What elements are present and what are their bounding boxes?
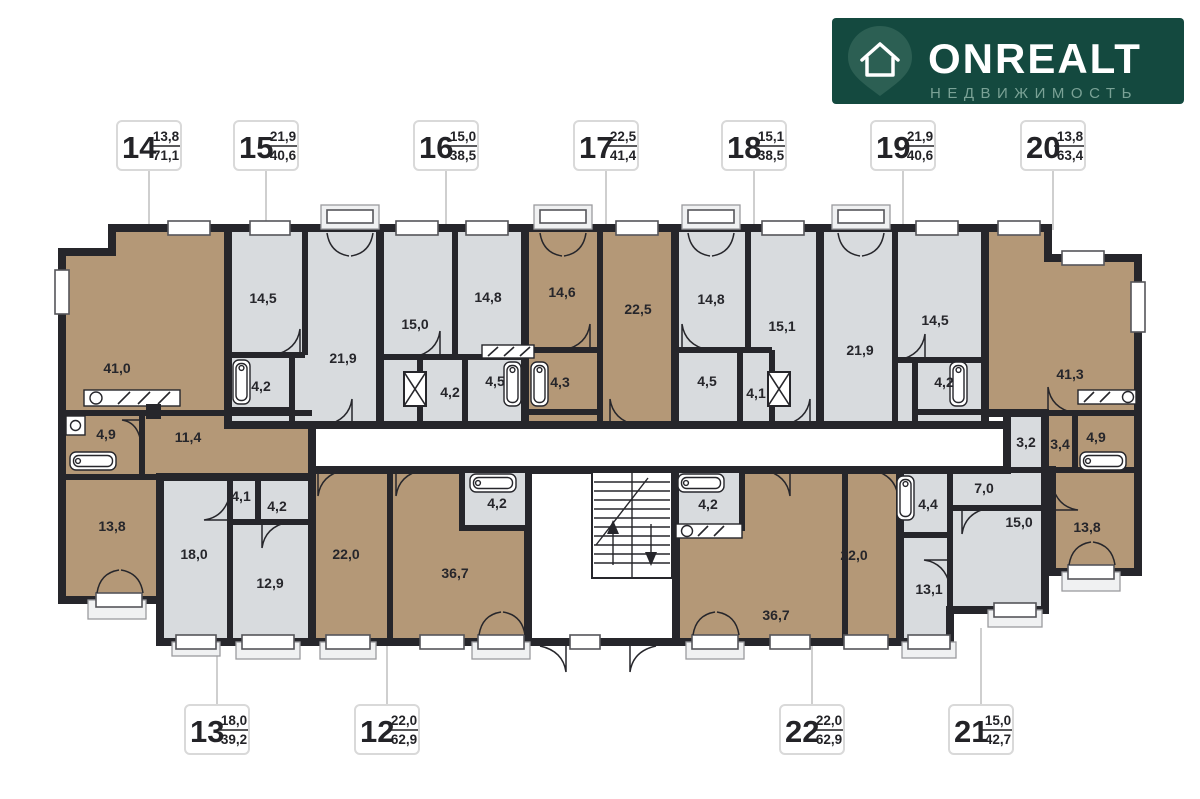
floor-plan-canvas: 41,0 4,9 11,4 13,8 14,5 4,2 21,9 15,0 14…	[0, 0, 1200, 799]
unit-label-14[interactable]: 14 13,8 71,1	[117, 121, 181, 170]
room-area-label: 3,4	[1050, 436, 1070, 452]
room-area-label: 14,5	[921, 312, 948, 328]
room-area-label: 4,2	[440, 384, 460, 400]
svg-text:63,4: 63,4	[1057, 148, 1084, 163]
room-area-label: 14,6	[548, 284, 575, 300]
bay-window	[988, 603, 1042, 627]
room-area-label: 4,5	[485, 373, 505, 389]
svg-text:15,0: 15,0	[985, 713, 1011, 728]
unit-label-19[interactable]: 19 21,9 40,6	[871, 121, 935, 170]
svg-text:22,5: 22,5	[610, 129, 637, 144]
bathtub	[531, 362, 548, 406]
room-area-label: 4,1	[746, 385, 766, 401]
room-area-label: 13,8	[98, 518, 125, 534]
room-area-label: 4,2	[251, 378, 271, 394]
logo-subtitle-text: НЕДВИЖИМОСТЬ	[930, 85, 1138, 102]
unit-label-15[interactable]: 15 21,9 40,6	[234, 121, 298, 170]
kitchen-counter	[84, 390, 180, 406]
svg-text:20: 20	[1026, 130, 1060, 165]
bathtub	[504, 362, 521, 406]
room-area-label: 22,0	[332, 546, 359, 562]
unit-label-16[interactable]: 16 15,0 38,5	[414, 121, 478, 170]
floor-plan-page: 41,0 4,9 11,4 13,8 14,5 4,2 21,9 15,0 14…	[0, 0, 1200, 799]
svg-text:22: 22	[785, 714, 819, 749]
svg-text:41,4: 41,4	[610, 148, 637, 163]
bathtub	[233, 360, 250, 404]
logo-badge: ONREALT НЕДВИЖИМОСТЬ	[832, 18, 1184, 104]
vent-shaft	[768, 372, 790, 406]
svg-text:18: 18	[727, 130, 761, 165]
bay-window	[236, 635, 300, 659]
room-area-label: 36,7	[762, 607, 789, 623]
room-area-label: 4,4	[918, 496, 938, 512]
svg-text:15: 15	[239, 130, 273, 165]
bay-window	[534, 205, 592, 229]
room-area-label: 14,8	[474, 289, 501, 305]
room-area-label: 21,9	[329, 350, 356, 366]
unit-label-12[interactable]: 12 22,0 62,9	[355, 705, 419, 754]
room-area-label: 14,8	[697, 291, 724, 307]
bay-window	[320, 635, 376, 659]
svg-text:12: 12	[360, 714, 394, 749]
balcony-door	[1062, 565, 1120, 591]
bathtub	[470, 474, 516, 492]
bathtub	[897, 476, 914, 520]
unit-label-17[interactable]: 17 22,5 41,4	[574, 121, 638, 170]
unit-label-18[interactable]: 18 15,1 38,5	[722, 121, 786, 170]
balcony-door	[88, 593, 146, 619]
svg-text:13,8: 13,8	[1057, 129, 1084, 144]
vent-shaft	[404, 372, 426, 406]
room-area-label: 4,2	[934, 374, 954, 390]
svg-text:16: 16	[419, 130, 453, 165]
bay-window	[682, 205, 740, 229]
svg-text:21,9: 21,9	[907, 129, 933, 144]
svg-text:15,0: 15,0	[450, 129, 476, 144]
room-area-label: 13,8	[1073, 519, 1100, 535]
svg-text:19: 19	[876, 130, 910, 165]
room-area-label: 12,9	[256, 575, 283, 591]
room-area-label: 15,1	[768, 318, 795, 334]
svg-text:17: 17	[579, 130, 613, 165]
room-area-label: 21,9	[846, 342, 873, 358]
bay-window	[832, 205, 890, 229]
svg-text:13,8: 13,8	[153, 129, 180, 144]
svg-text:15,1: 15,1	[758, 129, 785, 144]
svg-text:39,2: 39,2	[221, 732, 247, 747]
svg-text:13: 13	[190, 714, 224, 749]
room-area-label: 15,0	[401, 316, 428, 332]
kitchen-counter	[1078, 390, 1136, 404]
room-area-label: 22,5	[624, 301, 651, 317]
svg-text:40,6: 40,6	[907, 148, 934, 163]
room-area-label: 15,0	[1005, 514, 1032, 530]
svg-text:62,9: 62,9	[391, 732, 417, 747]
room-area-label: 4,2	[487, 495, 507, 511]
bay-window	[902, 635, 956, 658]
corridor	[312, 425, 1007, 470]
room-area-label: 3,2	[1016, 434, 1036, 450]
room-area-label: 22,0	[840, 547, 867, 563]
svg-text:21: 21	[954, 714, 988, 749]
svg-text:38,5: 38,5	[758, 148, 785, 163]
room-area-label: 4,5	[697, 373, 717, 389]
svg-text:71,1: 71,1	[153, 148, 180, 163]
svg-text:22,0: 22,0	[816, 713, 842, 728]
unit-label-20[interactable]: 20 13,8 63,4	[1021, 121, 1085, 170]
svg-text:18,0: 18,0	[221, 713, 247, 728]
room-area-label: 4,1	[231, 488, 251, 504]
bathtub	[70, 452, 116, 470]
unit-label-13[interactable]: 13 18,0 39,2	[185, 705, 249, 754]
bay-window	[172, 635, 220, 656]
room-area-label: 7,0	[974, 480, 994, 496]
room-area-label: 4,2	[698, 496, 718, 512]
svg-text:21,9: 21,9	[270, 129, 296, 144]
room-area-label: 14,5	[249, 290, 276, 306]
washing-machine	[66, 416, 85, 435]
room-area-label: 18,0	[180, 546, 207, 562]
bathtub	[1080, 452, 1126, 470]
room-area-label: 36,7	[441, 565, 468, 581]
svg-text:22,0: 22,0	[391, 713, 417, 728]
room-area-label: 4,3	[550, 374, 570, 390]
svg-text:62,9: 62,9	[816, 732, 842, 747]
column	[146, 404, 161, 419]
room-area-label: 4,9	[1086, 429, 1106, 445]
bathtub	[678, 474, 724, 492]
unit-label-22[interactable]: 22 22,0 62,9	[780, 705, 844, 754]
svg-text:40,6: 40,6	[270, 148, 297, 163]
balcony-door	[686, 635, 744, 659]
unit-label-21[interactable]: 21 15,0 42,7	[949, 705, 1013, 754]
room-area-label: 41,0	[103, 360, 130, 376]
kitchen-counter	[482, 345, 534, 358]
room-area-label: 4,9	[96, 426, 116, 442]
staircase	[592, 472, 672, 578]
logo-brand-text: ONREALT	[928, 35, 1142, 82]
kitchen-counter	[676, 524, 742, 538]
room-area-label: 11,4	[175, 429, 202, 445]
svg-text:38,5: 38,5	[450, 148, 477, 163]
room-area-label: 41,3	[1056, 366, 1083, 382]
room-area-label: 13,1	[915, 581, 942, 597]
bay-window	[321, 205, 379, 229]
svg-text:42,7: 42,7	[985, 732, 1011, 747]
room-area-label: 4,2	[267, 498, 287, 514]
balcony-door	[472, 635, 530, 659]
